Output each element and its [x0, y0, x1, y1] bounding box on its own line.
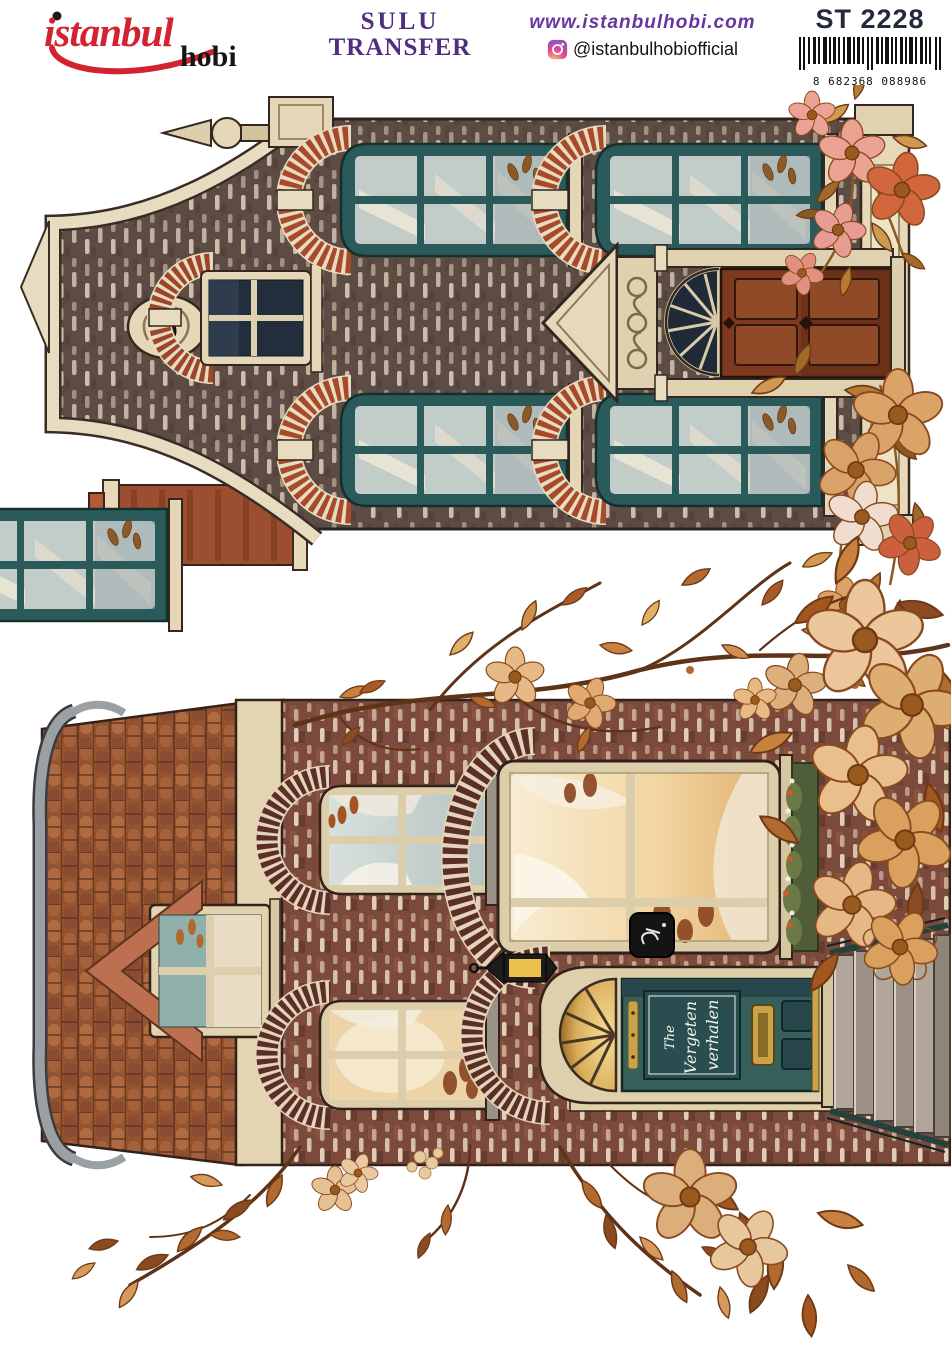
instagram-handle: @istanbulhobiofficial: [573, 39, 738, 60]
product-type-line1: SULU: [295, 9, 505, 35]
flower-cluster-bottom-right: [640, 1149, 878, 1336]
teal-door: The Vergeten verhalen: [622, 979, 819, 1091]
product-code-block: ST 2228: [795, 4, 945, 90]
door-sign-line1: The: [663, 1025, 678, 1050]
contact-block: www.istanbulhobi.com @istanbulhobioffici…: [505, 12, 780, 60]
transfer-sheet: istanbul hobi SULU TRANSFER www.istanbul…: [0, 0, 951, 1345]
door-sign-line3: verhalen: [703, 1000, 722, 1071]
gable-window: [149, 264, 322, 372]
product-header: istanbul hobi SULU TRANSFER www.istanbul…: [0, 0, 951, 86]
flower-box: [783, 763, 818, 951]
instagram-row: @istanbulhobiofficial: [505, 39, 780, 60]
sash-window: [0, 499, 182, 631]
product-type-title: SULU TRANSFER: [295, 9, 505, 61]
product-type-line2: TRANSFER: [295, 35, 505, 61]
barcode: 8 682368 088986: [799, 37, 941, 88]
barcode-bars-icon: [799, 37, 941, 72]
house-number-plaque: [630, 913, 674, 957]
autumn-branches-bottom: [69, 1145, 732, 1319]
house-bottom-illustration: The Vergeten verhalen: [40, 534, 951, 1336]
door-sign-line2: Vergeten: [681, 1001, 700, 1074]
door-sign: The Vergeten verhalen: [644, 991, 740, 1079]
instagram-icon: [547, 39, 568, 60]
house-top-illustration: [0, 85, 951, 633]
brand-logo: istanbul hobi: [30, 2, 255, 82]
website-url: www.istanbulhobi.com: [505, 12, 780, 34]
product-code: ST 2228: [795, 4, 945, 35]
transfer-sheet-artwork: The Vergeten verhalen: [0, 85, 951, 1345]
brand-word-hobi: hobi: [180, 40, 237, 74]
brand-word-istanbul: istanbul: [44, 8, 173, 56]
